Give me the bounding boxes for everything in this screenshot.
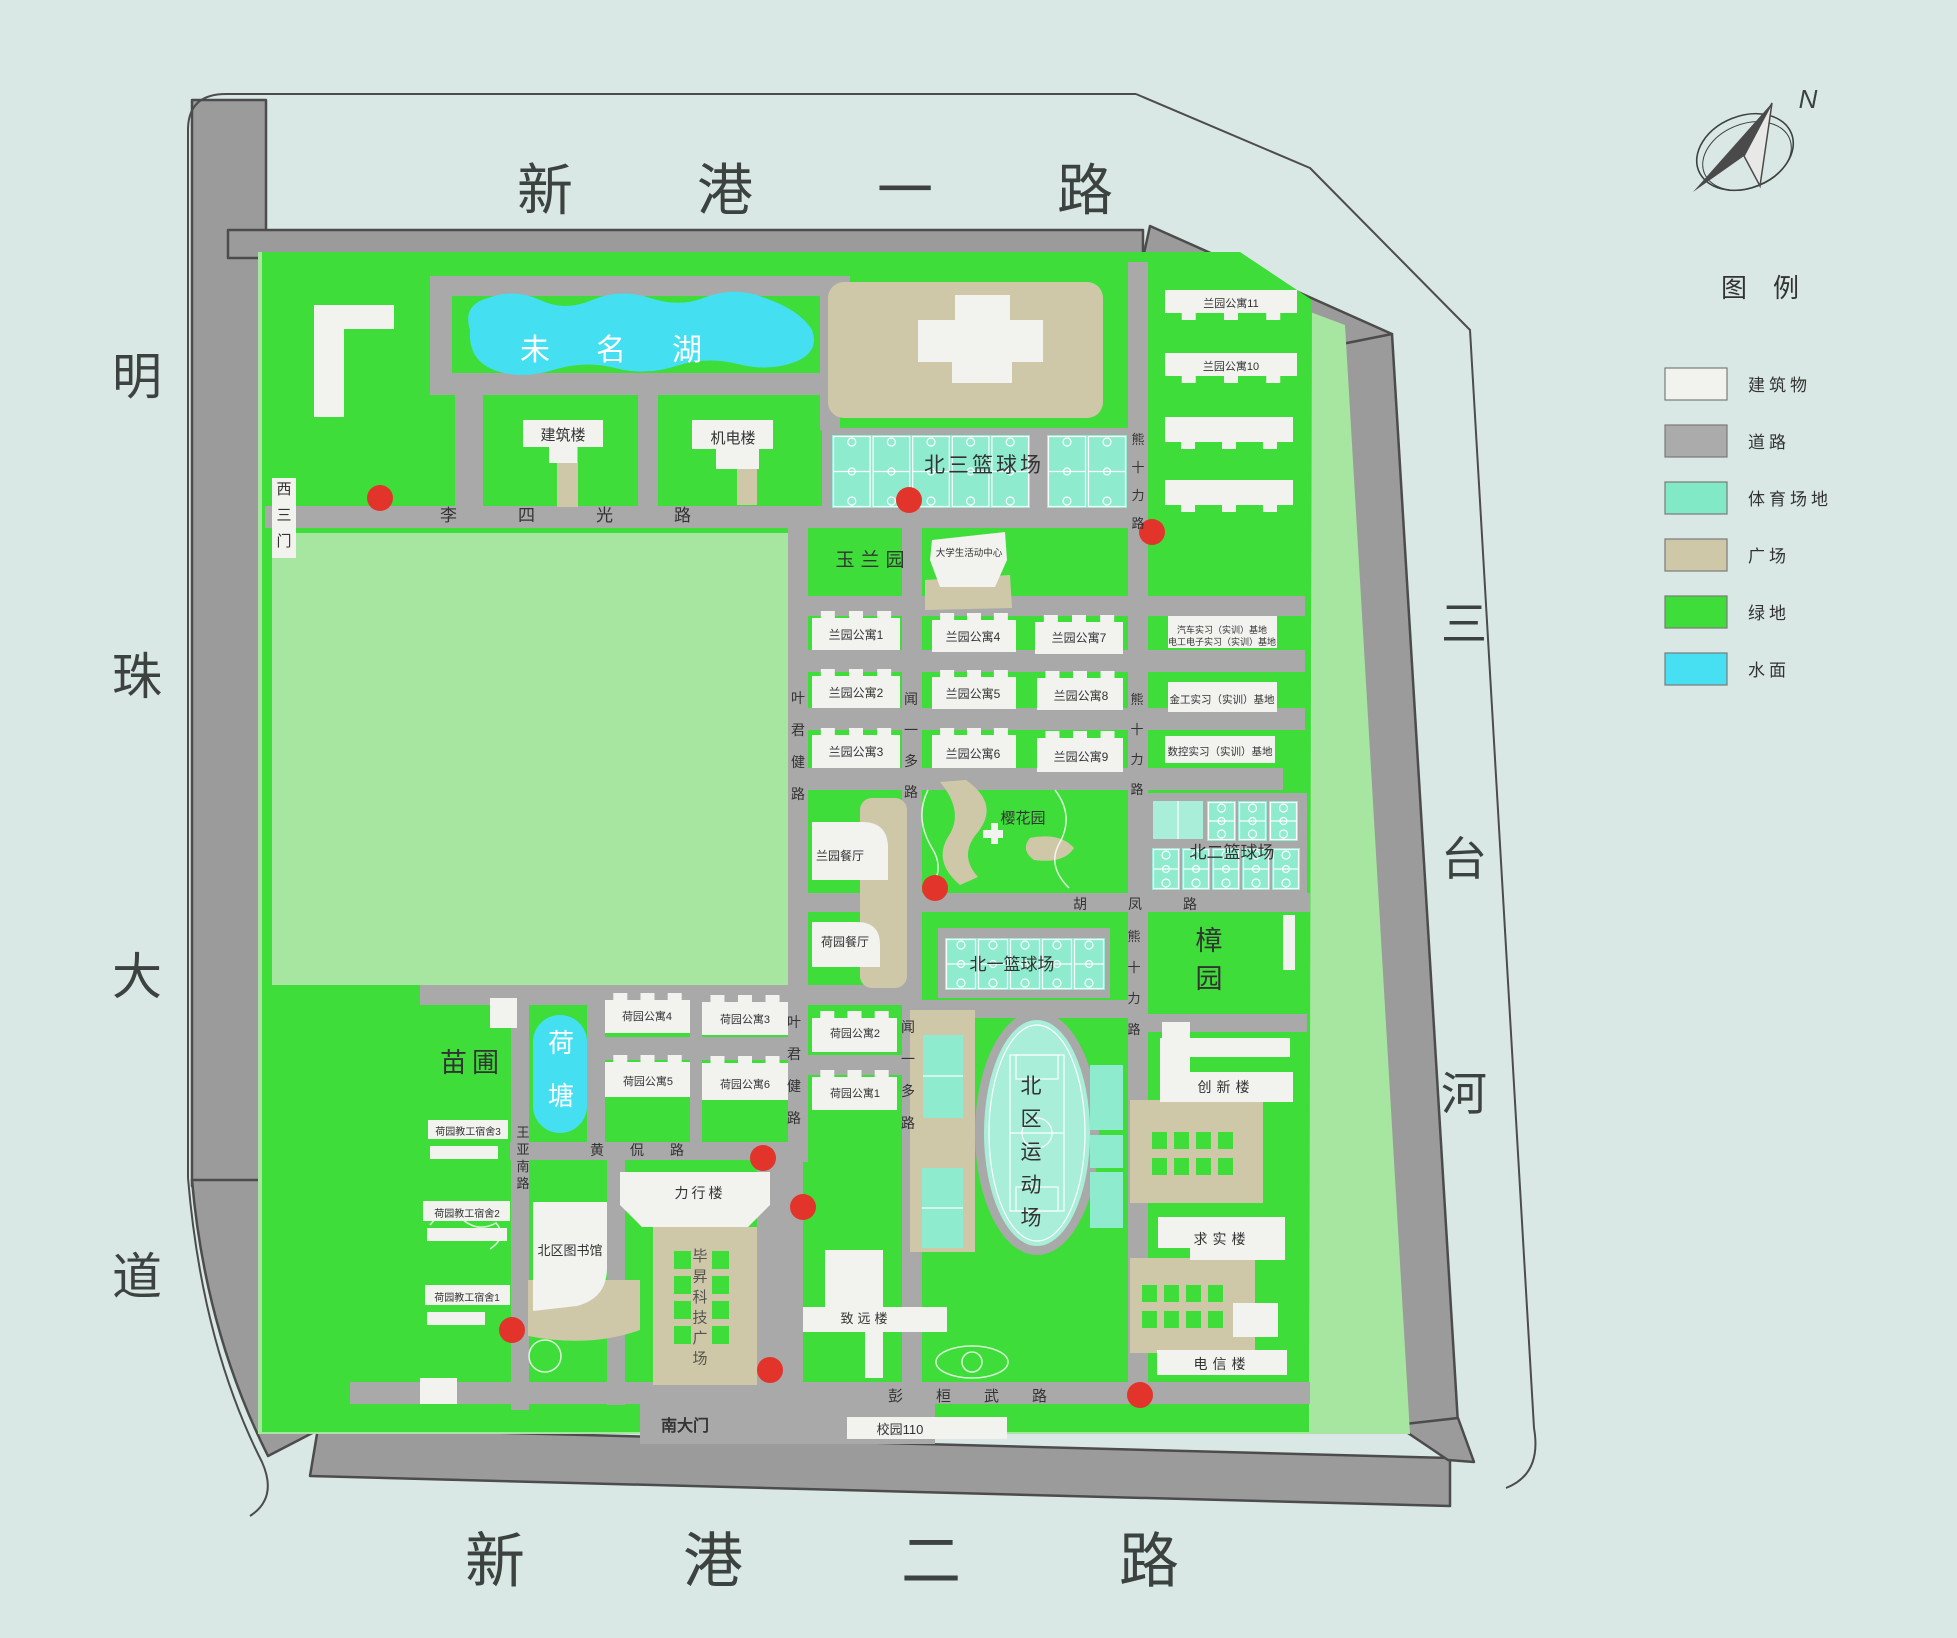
courtyard-planter [712,1251,729,1269]
courtyard-planter [1142,1311,1157,1328]
legend-swatch-0 [1665,368,1727,400]
label-road-xingang1: 新港一路 [517,159,1237,222]
building-apt-he3-stairwell [710,995,724,1002]
label-gate-west3: 西三门 [276,481,291,550]
building-apt-lan10-stairwell [1224,376,1238,383]
building-apt-lan3-stairwell [821,728,835,735]
label-road-lisiguang: 李四光路 [440,506,752,525]
legend-label-5: 水面 [1748,661,1790,680]
label-campus110: 校园110 [877,1422,924,1437]
label-apt-he5: 荷园公寓5 [623,1074,673,1088]
building-apt-bar-a [1165,417,1293,442]
building-apt-lan2-stairwell [877,669,891,676]
building-apt-lan8-stairwell [1045,671,1059,678]
label-apt-lan11: 兰园公寓11 [1203,296,1258,310]
courtyard-planter [1186,1285,1201,1302]
label-dorm-he2: 荷园教工宿舍2 [434,1207,500,1220]
label-bldg-dianxin: 电信楼 [1194,1356,1251,1372]
building-qiushi-annex [1233,1303,1278,1337]
building-apt-lan6-stairwell [967,728,981,735]
label-apt-he3: 荷园公寓3 [720,1012,770,1026]
road-v1 [455,393,483,508]
legend-swatch-4 [1665,596,1727,628]
building-apt-lan10-stairwell [1182,376,1196,383]
court-e1 [1090,1065,1123,1130]
basketball-court [1047,435,1087,508]
building-southwest-small [420,1378,457,1404]
label-bldg-qiushi: 求实楼 [1194,1231,1251,1247]
building-apt-he3-stairwell [766,995,780,1002]
building-apt-lan7-stairwell [1072,615,1086,622]
road-wangyanan [511,985,529,1410]
legend-label-2: 体育场地 [1748,490,1832,509]
building-apt-he6-stairwell [738,1056,752,1063]
legend-swatch-1 [1665,425,1727,457]
emergency-marker [922,875,948,901]
road-south-of-lake [430,373,848,395]
building-apt-he5-stairwell [641,1055,655,1062]
building-apt-lan1-stairwell [821,611,835,618]
building-apt-lan9-stairwell [1101,731,1115,738]
building-apt-lan4-stairwell [994,613,1008,620]
label-apt-lan10: 兰园公寓10 [1203,359,1259,373]
road-heyuan-v1 [587,1005,605,1145]
building-apt-lan5-stairwell [967,670,981,677]
building-apt-he4-stairwell [668,993,682,1000]
courtyard-planter [712,1276,729,1294]
building-apt-bar-b-stairwell [1181,505,1195,512]
label-dorm-he3: 荷园教工宿舍3 [435,1125,501,1138]
central-open-field [272,533,788,985]
label-road-mingzhu: 明珠大道 [112,349,162,1305]
basketball-court [1207,801,1236,841]
building-zhangyuan-sliver [1283,915,1295,970]
building-zhiyuanlou-wing [865,1332,883,1378]
label-rest-lanyuan: 兰园餐厅 [816,848,864,863]
road-heyuan-row [605,1037,788,1060]
emergency-marker [750,1145,776,1171]
label-road-penghuanwu: 彭桓武路 [888,1388,1080,1405]
campus-map: 新港一路新港二路明珠大道三台河未名湖建筑楼机电楼北三篮球场兰园公寓11兰园公寓1… [0,0,1957,1638]
basketball-court [1269,801,1298,841]
building-apt-he4-stairwell [613,993,627,1000]
courtyard-planter [674,1251,691,1269]
building-apt-lan4-stairwell [967,613,981,620]
building-apt-he2-stairwell [848,1011,862,1018]
court-e3 [1090,1172,1123,1228]
basketball-court [1238,801,1267,841]
label-bldg-jianzhu: 建筑楼 [540,427,585,444]
courtyard-planter [674,1301,691,1319]
label-base-diangong: 电工电子实习（实训）基地 [1168,636,1276,647]
building-campus110-box [847,1417,1007,1439]
building-miaopu-small [490,998,517,1028]
legend-label-0: 建筑物 [1748,376,1811,395]
road-v2 [638,393,658,508]
legend: 建筑物道路体育场地广场绿地水面 [1665,368,1832,685]
building-apt-lan5-stairwell [940,670,954,677]
road-penghuanwu [350,1382,1310,1404]
courtyard-planter [1142,1285,1157,1302]
road-row0 [788,596,1305,616]
building-apt-lan5-stairwell [994,670,1008,677]
building-dorm-he1-annex [427,1312,485,1325]
building-apt-he1-stairwell [820,1070,834,1077]
label-apt-lan4: 兰园公寓4 [946,629,1001,644]
road-row3 [788,768,1283,790]
courtyard-planter [712,1301,729,1319]
label-apt-he2: 荷园公寓2 [830,1026,880,1040]
basketball-court [1152,848,1180,890]
emergency-marker [757,1357,783,1383]
building-apt-bar-a-stairwell [1263,442,1277,449]
label-park-yinghua: 樱花园 [1000,810,1045,827]
building-apt-bar-b-stairwell [1222,505,1236,512]
building-apt-lan2-stairwell [821,669,835,676]
building-apt-he6-stairwell [710,1056,724,1063]
courtyard-planter [1186,1311,1201,1328]
building-apt-bar-a-stairwell [1181,442,1195,449]
courtyard-planter [1174,1132,1189,1149]
label-base-jingong: 金工实习（实训）基地 [1170,693,1275,706]
courtyard-planter [1218,1158,1233,1175]
courtyard-planter [1196,1158,1211,1175]
courtyard-planter [1174,1158,1189,1175]
building-apt-lan8-stairwell [1073,671,1087,678]
courtyard-planter [1196,1132,1211,1149]
building-apt-lan7-stairwell [1100,615,1114,622]
label-compass-n: N [1799,84,1818,114]
label-bldg-chuangxin: 创新楼 [1198,1079,1255,1095]
label-road-xingang2: 新港二路 [465,1528,1337,1595]
label-apt-lan2: 兰园公寓2 [829,685,884,700]
label-apt-lan9: 兰园公寓9 [1054,749,1109,764]
building-apt-bar-b-stairwell [1263,505,1277,512]
building-dorm-he2-annex [427,1228,507,1241]
label-legend-title: 图例 [1721,273,1825,303]
label-court-bei1: 北一篮球场 [970,955,1055,974]
emergency-marker [790,1194,816,1220]
emergency-marker [1127,1382,1153,1408]
building-apt-lan8-stairwell [1101,671,1115,678]
building-apt-lan11-stairwell [1182,313,1196,320]
label-park-yulan: 玉兰园 [835,549,910,571]
label-base-shukong: 数控实习（实训）基地 [1168,745,1273,758]
label-apt-lan1: 兰园公寓1 [829,627,884,642]
building-apt-he5-stairwell [613,1055,627,1062]
road-north-of-lake [430,276,850,296]
legend-swatch-3 [1665,539,1727,571]
building-apt-lan1-stairwell [849,611,863,618]
court-e2 [1090,1135,1123,1168]
building-apt-lan10-stairwell [1266,376,1280,383]
label-bldg-activity: 大学生活动中心 [936,547,1003,559]
chuangxin-courtyard [1130,1100,1263,1203]
label-road-huangkan: 黄侃路 [590,1142,710,1158]
building-apt-lan11-stairwell [1266,313,1280,320]
label-apt-lan7: 兰园公寓7 [1052,630,1107,645]
building-apt-he3-stairwell [738,995,752,1002]
lawn-block2 [702,1103,788,1133]
road-heyuan-v2 [690,1005,702,1145]
label-apt-he1: 荷园公寓1 [830,1086,880,1100]
label-base-qiche: 汽车实习（实训）基地 [1177,624,1267,635]
label-lib-beiqu: 北区图书馆 [537,1243,602,1258]
courtyard-planter [1164,1311,1179,1328]
courtyard-planter [1152,1132,1167,1149]
label-apt-he6: 荷园公寓6 [720,1077,770,1091]
building-apt-he5-stairwell [668,1055,682,1062]
label-court-bei3: 北三篮球场 [924,454,1044,477]
building-apt-he6-stairwell [766,1056,780,1063]
road-side-left [192,100,266,1186]
building-apt-lan1-stairwell [877,611,891,618]
emergency-marker [896,487,922,513]
courtyard-planter [1164,1285,1179,1302]
emergency-marker [367,485,393,511]
label-rest-heyuan: 荷园餐厅 [821,934,869,949]
building-dorm-he3-annex [430,1146,498,1159]
courtyard-planter [1208,1311,1223,1328]
legend-label-1: 道路 [1748,433,1790,452]
legend-swatch-5 [1665,653,1727,685]
basketball-court [832,435,872,508]
legend-swatch-2 [1665,482,1727,514]
label-road-hufeng: 胡凤路 [1073,896,1238,912]
label-gate-south: 南大门 [661,1416,709,1435]
building-apt-lan3-stairwell [877,728,891,735]
building-apt-lan9-stairwell [1045,731,1059,738]
building-apt-lan2-stairwell [849,669,863,676]
basketball-court [1272,848,1300,890]
label-bldg-zhiyuan: 致远楼 [840,1311,891,1326]
campus-map-page: 新港一路新港二路明珠大道三台河未名湖建筑楼机电楼北三篮球场兰园公寓11兰园公寓1… [0,0,1957,1638]
building-apt-lan11-stairwell [1224,313,1238,320]
building-apt-bar-b [1165,480,1293,505]
courtyard-planter [712,1326,729,1344]
road-yejunjian [788,528,808,1162]
label-apt-lan6: 兰园公寓6 [946,746,1001,761]
building-apt-lan9-stairwell [1073,731,1087,738]
label-bldg-jidian: 机电楼 [710,430,755,447]
legend-label-4: 绿地 [1748,604,1790,623]
label-bldg-lixing: 力行楼 [675,1185,726,1201]
building-apt-he1-stairwell [848,1070,862,1077]
label-apt-lan8: 兰园公寓8 [1054,688,1109,703]
building-apt-lan4-stairwell [940,613,954,620]
emergency-marker [499,1317,525,1343]
label-court-bei2: 北二篮球场 [1190,843,1275,862]
courtyard-planter [1208,1285,1223,1302]
label-apt-lan3: 兰园公寓3 [829,744,884,759]
courtyard-planter [1152,1158,1167,1175]
label-lake-weiming: 未名湖 [520,334,748,367]
label-dorm-he1: 荷园教工宿舍1 [434,1291,500,1304]
courtyard-planter [674,1326,691,1344]
building-apt-he2-stairwell [875,1011,889,1018]
label-apt-he4: 荷园公寓4 [622,1009,672,1023]
label-river-santai: 三台河 [1441,598,1487,1120]
building-apt-he2-stairwell [820,1011,834,1018]
lawn-block1 [605,1103,690,1133]
courtyard-planter [1218,1132,1233,1149]
legend-label-3: 广场 [1748,547,1790,566]
building-apt-lan6-stairwell [994,728,1008,735]
basketball-court [1087,435,1127,508]
building-student-activity-center [930,532,1007,587]
building-apt-lan6-stairwell [940,728,954,735]
label-nursery-miaopu: 苗圃 [440,1048,504,1078]
building-apt-lan3-stairwell [849,728,863,735]
courtyard-planter [674,1276,691,1294]
label-apt-lan5: 兰园公寓5 [946,686,1001,701]
basketball-court [1073,938,1105,990]
building-apt-lan7-stairwell [1044,615,1058,622]
building-apt-he1-stairwell [875,1070,889,1077]
building-apt-bar-a-stairwell [1222,442,1236,449]
building-apt-he4-stairwell [641,993,655,1000]
compass [1685,100,1805,204]
